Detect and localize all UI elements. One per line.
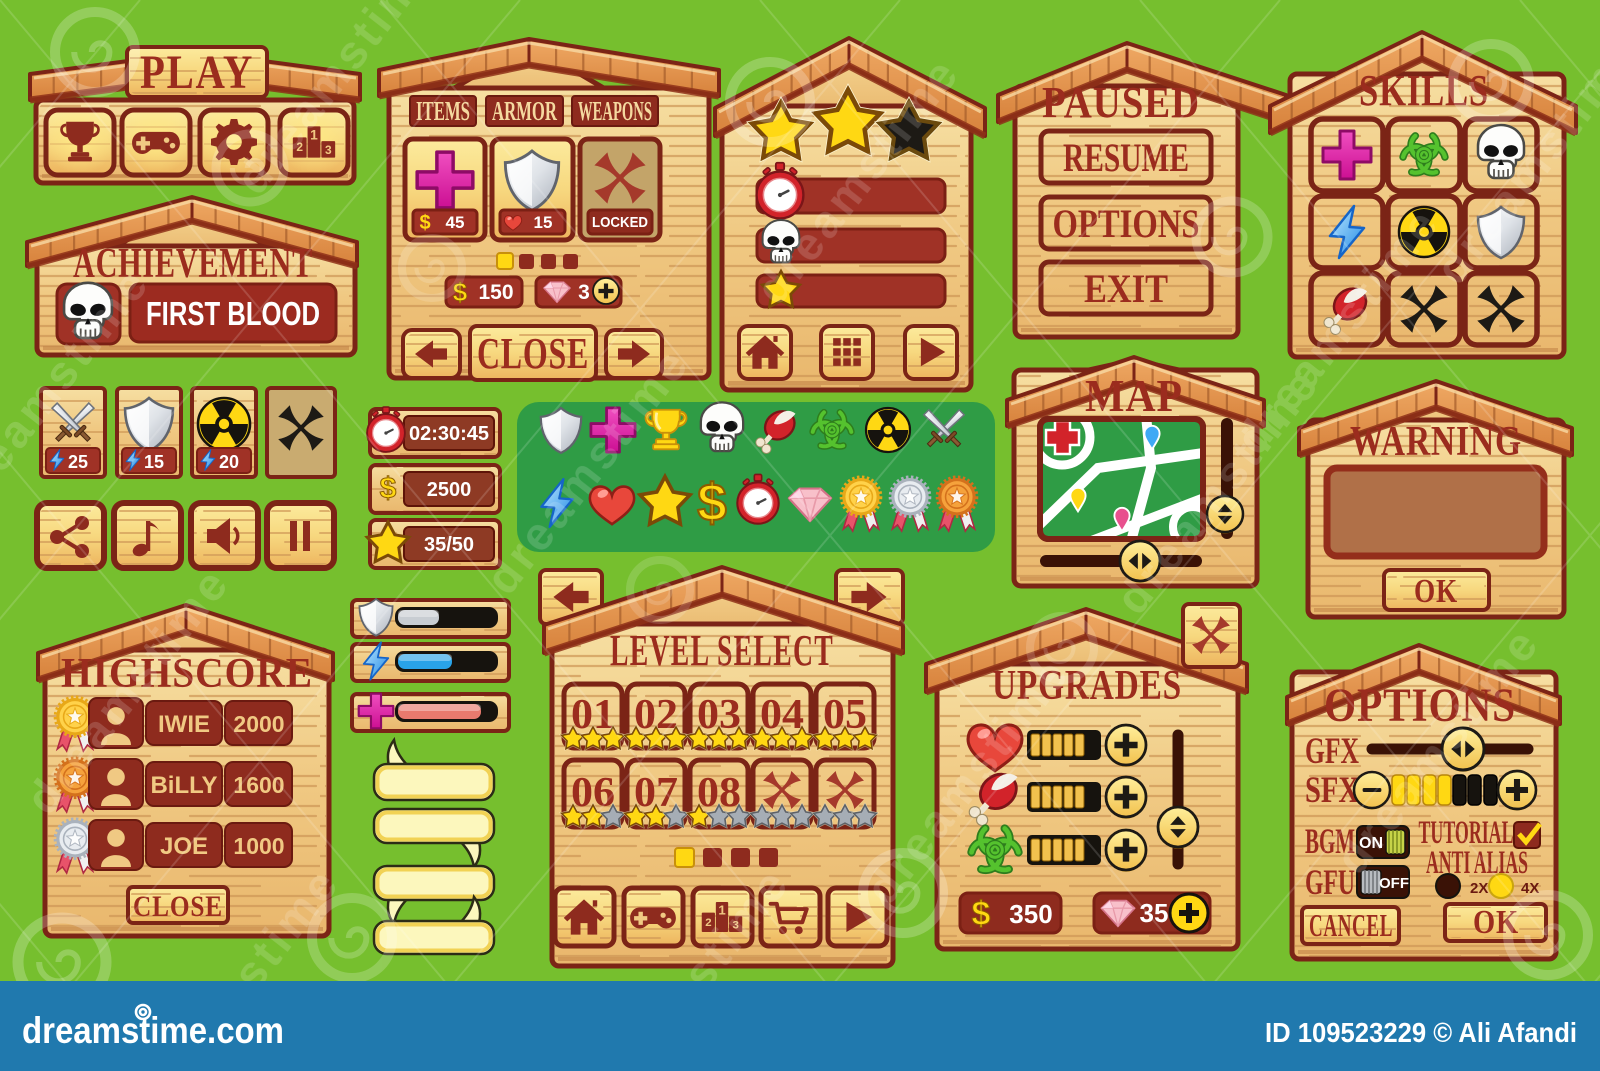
svg-text:$: $ — [453, 277, 468, 307]
svg-text:FIRST BLOOD: FIRST BLOOD — [146, 295, 320, 332]
svg-text:RESUME: RESUME — [1063, 135, 1189, 180]
svg-text:ON: ON — [1359, 835, 1383, 852]
svg-text:20: 20 — [219, 452, 239, 472]
svg-text:4X: 4X — [1521, 880, 1539, 897]
svg-text:PLAY: PLAY — [140, 46, 254, 99]
svg-text:CANCEL: CANCEL — [1309, 907, 1393, 943]
svg-text:ARMOR: ARMOR — [492, 96, 557, 126]
svg-text:2500: 2500 — [427, 479, 472, 501]
svg-text:GFX: GFX — [1305, 731, 1359, 772]
svg-text:OK: OK — [1473, 904, 1519, 941]
svg-text:1600: 1600 — [233, 772, 284, 798]
svg-text:BGM: BGM — [1305, 821, 1355, 861]
svg-text:2X: 2X — [1470, 880, 1488, 897]
svg-text:OPTIONS: OPTIONS — [1053, 201, 1200, 246]
svg-text:CLOSE: CLOSE — [133, 890, 223, 923]
svg-text:JOE: JOE — [160, 833, 208, 860]
svg-text:LOCKED: LOCKED — [592, 214, 648, 231]
svg-text:IWIE: IWIE — [158, 711, 210, 738]
svg-text:ITEMS: ITEMS — [416, 96, 470, 126]
svg-text:UPGRADES: UPGRADES — [992, 663, 1182, 709]
svg-text:$: $ — [972, 895, 991, 933]
svg-text:ID 109523229 © Ali Afandi: ID 109523229 © Ali Afandi — [1265, 1017, 1577, 1048]
svg-text:EXIT: EXIT — [1084, 266, 1168, 311]
svg-text:3: 3 — [578, 281, 590, 304]
svg-text:BiLLY: BiLLY — [150, 772, 217, 799]
svg-text:LEVEL SELECT: LEVEL SELECT — [610, 626, 834, 675]
svg-text:SKILLS: SKILLS — [1359, 66, 1489, 115]
svg-text:35: 35 — [1140, 898, 1169, 928]
svg-text:25: 25 — [68, 452, 88, 472]
svg-text:WEAPONS: WEAPONS — [578, 96, 652, 126]
svg-text:HIGHSCORE: HIGHSCORE — [61, 651, 313, 697]
svg-text:OFF: OFF — [1379, 875, 1409, 892]
svg-text:GFU: GFU — [1305, 862, 1355, 902]
svg-text:$: $ — [419, 212, 430, 234]
svg-text:350: 350 — [1009, 899, 1052, 929]
svg-text:OK: OK — [1414, 573, 1458, 610]
svg-text:02:30:45: 02:30:45 — [409, 423, 489, 445]
svg-text:WARNING: WARNING — [1350, 419, 1522, 465]
svg-text:SFX: SFX — [1305, 770, 1359, 811]
svg-text:dreamstime.com: dreamstime.com — [22, 1010, 284, 1051]
svg-text:35/50: 35/50 — [424, 534, 474, 556]
svg-text:45: 45 — [446, 213, 465, 232]
svg-text:15: 15 — [534, 213, 553, 232]
svg-text:15: 15 — [144, 452, 164, 472]
svg-text:150: 150 — [478, 281, 513, 304]
svg-text:1000: 1000 — [233, 833, 284, 859]
svg-text:ACHIEVEMENT: ACHIEVEMENT — [73, 241, 313, 287]
svg-text:OPTIONS: OPTIONS — [1324, 679, 1516, 732]
svg-text:MAP: MAP — [1085, 370, 1183, 421]
svg-text:2000: 2000 — [233, 711, 284, 737]
svg-text:CLOSE: CLOSE — [477, 329, 589, 378]
svg-text:$: $ — [380, 472, 397, 505]
svg-text:PAUSED: PAUSED — [1042, 78, 1200, 127]
